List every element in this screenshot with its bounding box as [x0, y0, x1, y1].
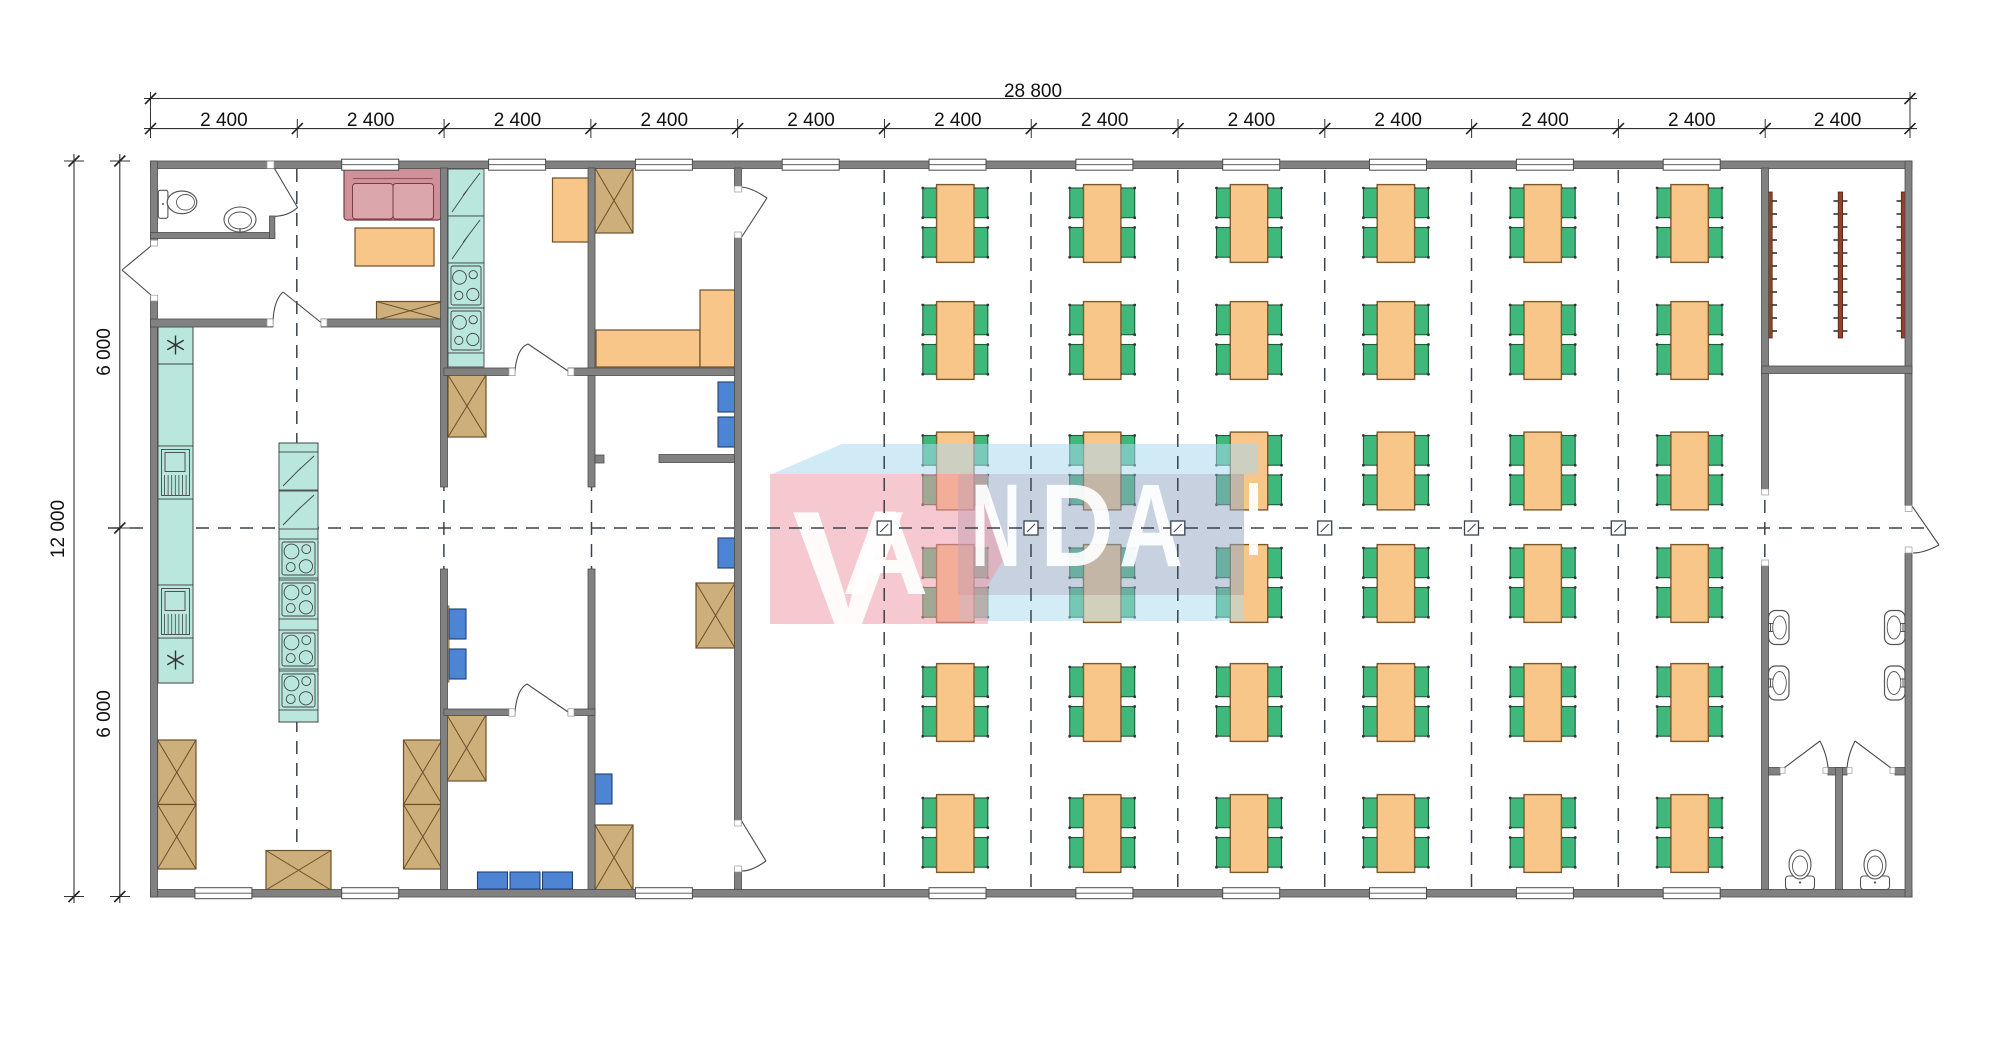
svg-text:2 400: 2 400	[1374, 110, 1422, 131]
svg-text:28 800: 28 800	[1004, 81, 1062, 102]
svg-text:D: D	[1040, 460, 1114, 592]
svg-text:2 400: 2 400	[1668, 110, 1716, 131]
svg-text:2 400: 2 400	[787, 110, 835, 131]
svg-text:6 000: 6 000	[94, 690, 115, 738]
svg-text:2 400: 2 400	[1228, 110, 1276, 131]
svg-text:N: N	[971, 460, 1021, 592]
svg-text:2 400: 2 400	[934, 110, 982, 131]
svg-text:A: A	[842, 486, 929, 620]
svg-text:12 000: 12 000	[48, 500, 69, 558]
svg-text:2 400: 2 400	[494, 110, 542, 131]
svg-text:6 000: 6 000	[94, 328, 115, 376]
svg-text:2 400: 2 400	[1814, 110, 1862, 131]
svg-text:2 400: 2 400	[1081, 110, 1129, 131]
svg-text:2 400: 2 400	[640, 110, 688, 131]
svg-text:2 400: 2 400	[1521, 110, 1569, 131]
svg-text:2 400: 2 400	[200, 110, 248, 131]
svg-text:2 400: 2 400	[347, 110, 395, 131]
